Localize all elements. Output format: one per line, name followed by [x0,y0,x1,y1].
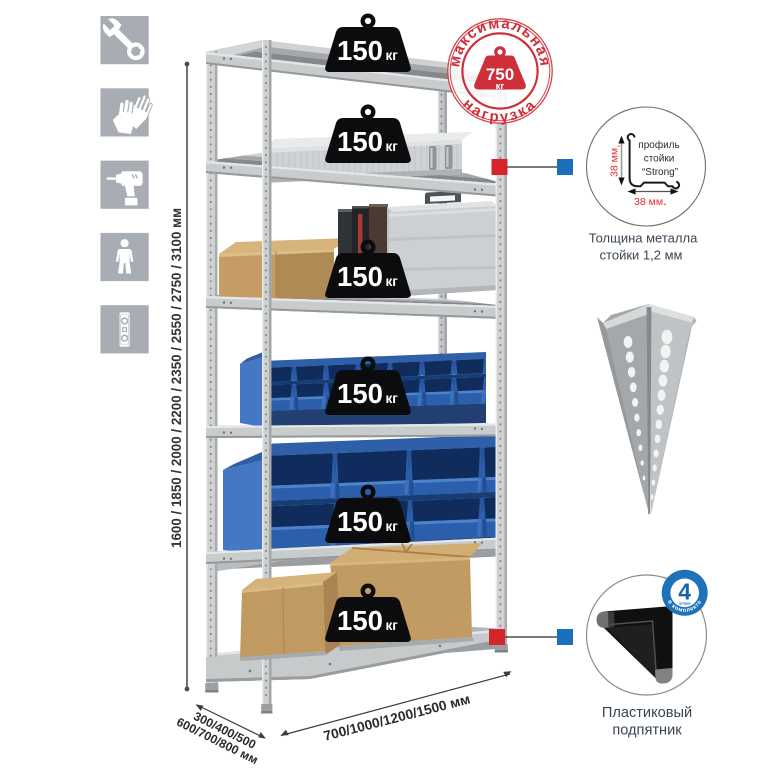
svg-text:150: 150 [337,35,383,66]
svg-text:кг: кг [386,391,399,406]
svg-text:150: 150 [337,378,383,409]
svg-text:1600 / 1850 / 2000 / 2200 / 23: 1600 / 1850 / 2000 / 2200 / 2350 / 2550 … [169,208,184,548]
svg-text:38 мм.: 38 мм. [634,193,667,208]
svg-text:“Strong”: “Strong” [642,167,678,178]
svg-text:кг: кг [496,81,505,92]
svg-text:150: 150 [337,126,383,157]
svg-text:150: 150 [337,261,383,292]
svg-text:стойки: стойки [644,154,675,165]
svg-text:штуки: штуки [679,602,691,606]
svg-text:профиль: профиль [638,139,679,151]
svg-text:150: 150 [337,506,383,537]
svg-text:кг: кг [386,618,399,633]
svg-text:38 мм.: 38 мм. [608,144,623,177]
svg-text:стойки 1,2 мм: стойки 1,2 мм [600,248,683,263]
svg-text:Толщина металла: Толщина металла [589,231,698,246]
svg-text:Пластиковый: Пластиковый [602,705,692,721]
svg-text:кг: кг [386,48,399,63]
svg-text:подпятник: подпятник [612,723,682,739]
svg-text:кг: кг [386,139,399,154]
svg-text:150: 150 [337,605,383,636]
svg-text:кг: кг [386,274,399,289]
svg-text:кг: кг [386,519,399,534]
